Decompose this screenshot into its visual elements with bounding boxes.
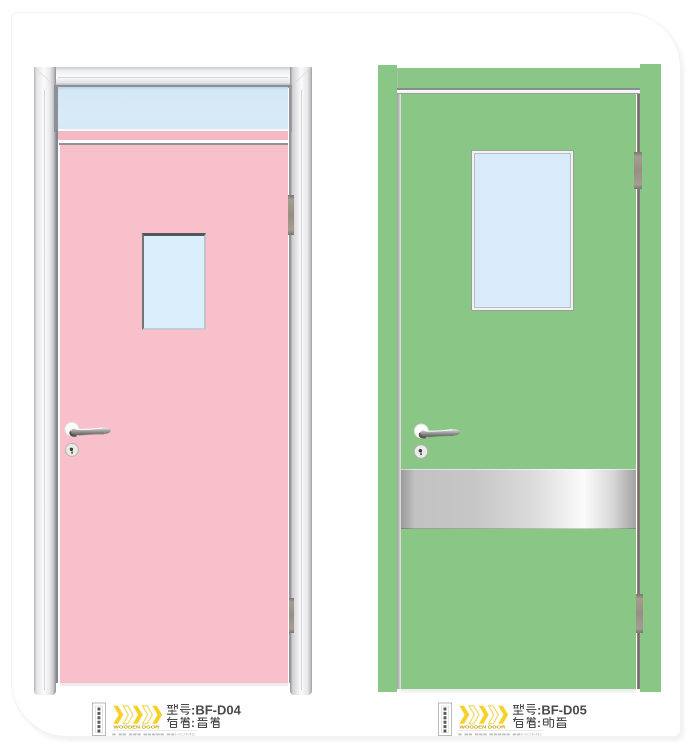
svg-text:WOODEN DOOR: WOODEN DOOR xyxy=(459,725,506,730)
svg-text::: : xyxy=(537,716,541,730)
svg-text::: : xyxy=(191,716,195,730)
svg-text:■ ■■ ■■■ ■■■■■ ■■HOME: ■ ■■ ■■■ ■■■■■ ■■HOME xyxy=(112,732,197,737)
svg-text:■ ■■ ■■■ ■■■■■ ■■HOME: ■ ■■ ■■■ ■■■■■ ■■HOME xyxy=(458,732,543,737)
svg-text::BF-D05: :BF-D05 xyxy=(537,703,587,718)
svg-text:WOODEN DOOR: WOODEN DOOR xyxy=(113,725,160,730)
svg-text::BF-D04: :BF-D04 xyxy=(191,703,242,718)
